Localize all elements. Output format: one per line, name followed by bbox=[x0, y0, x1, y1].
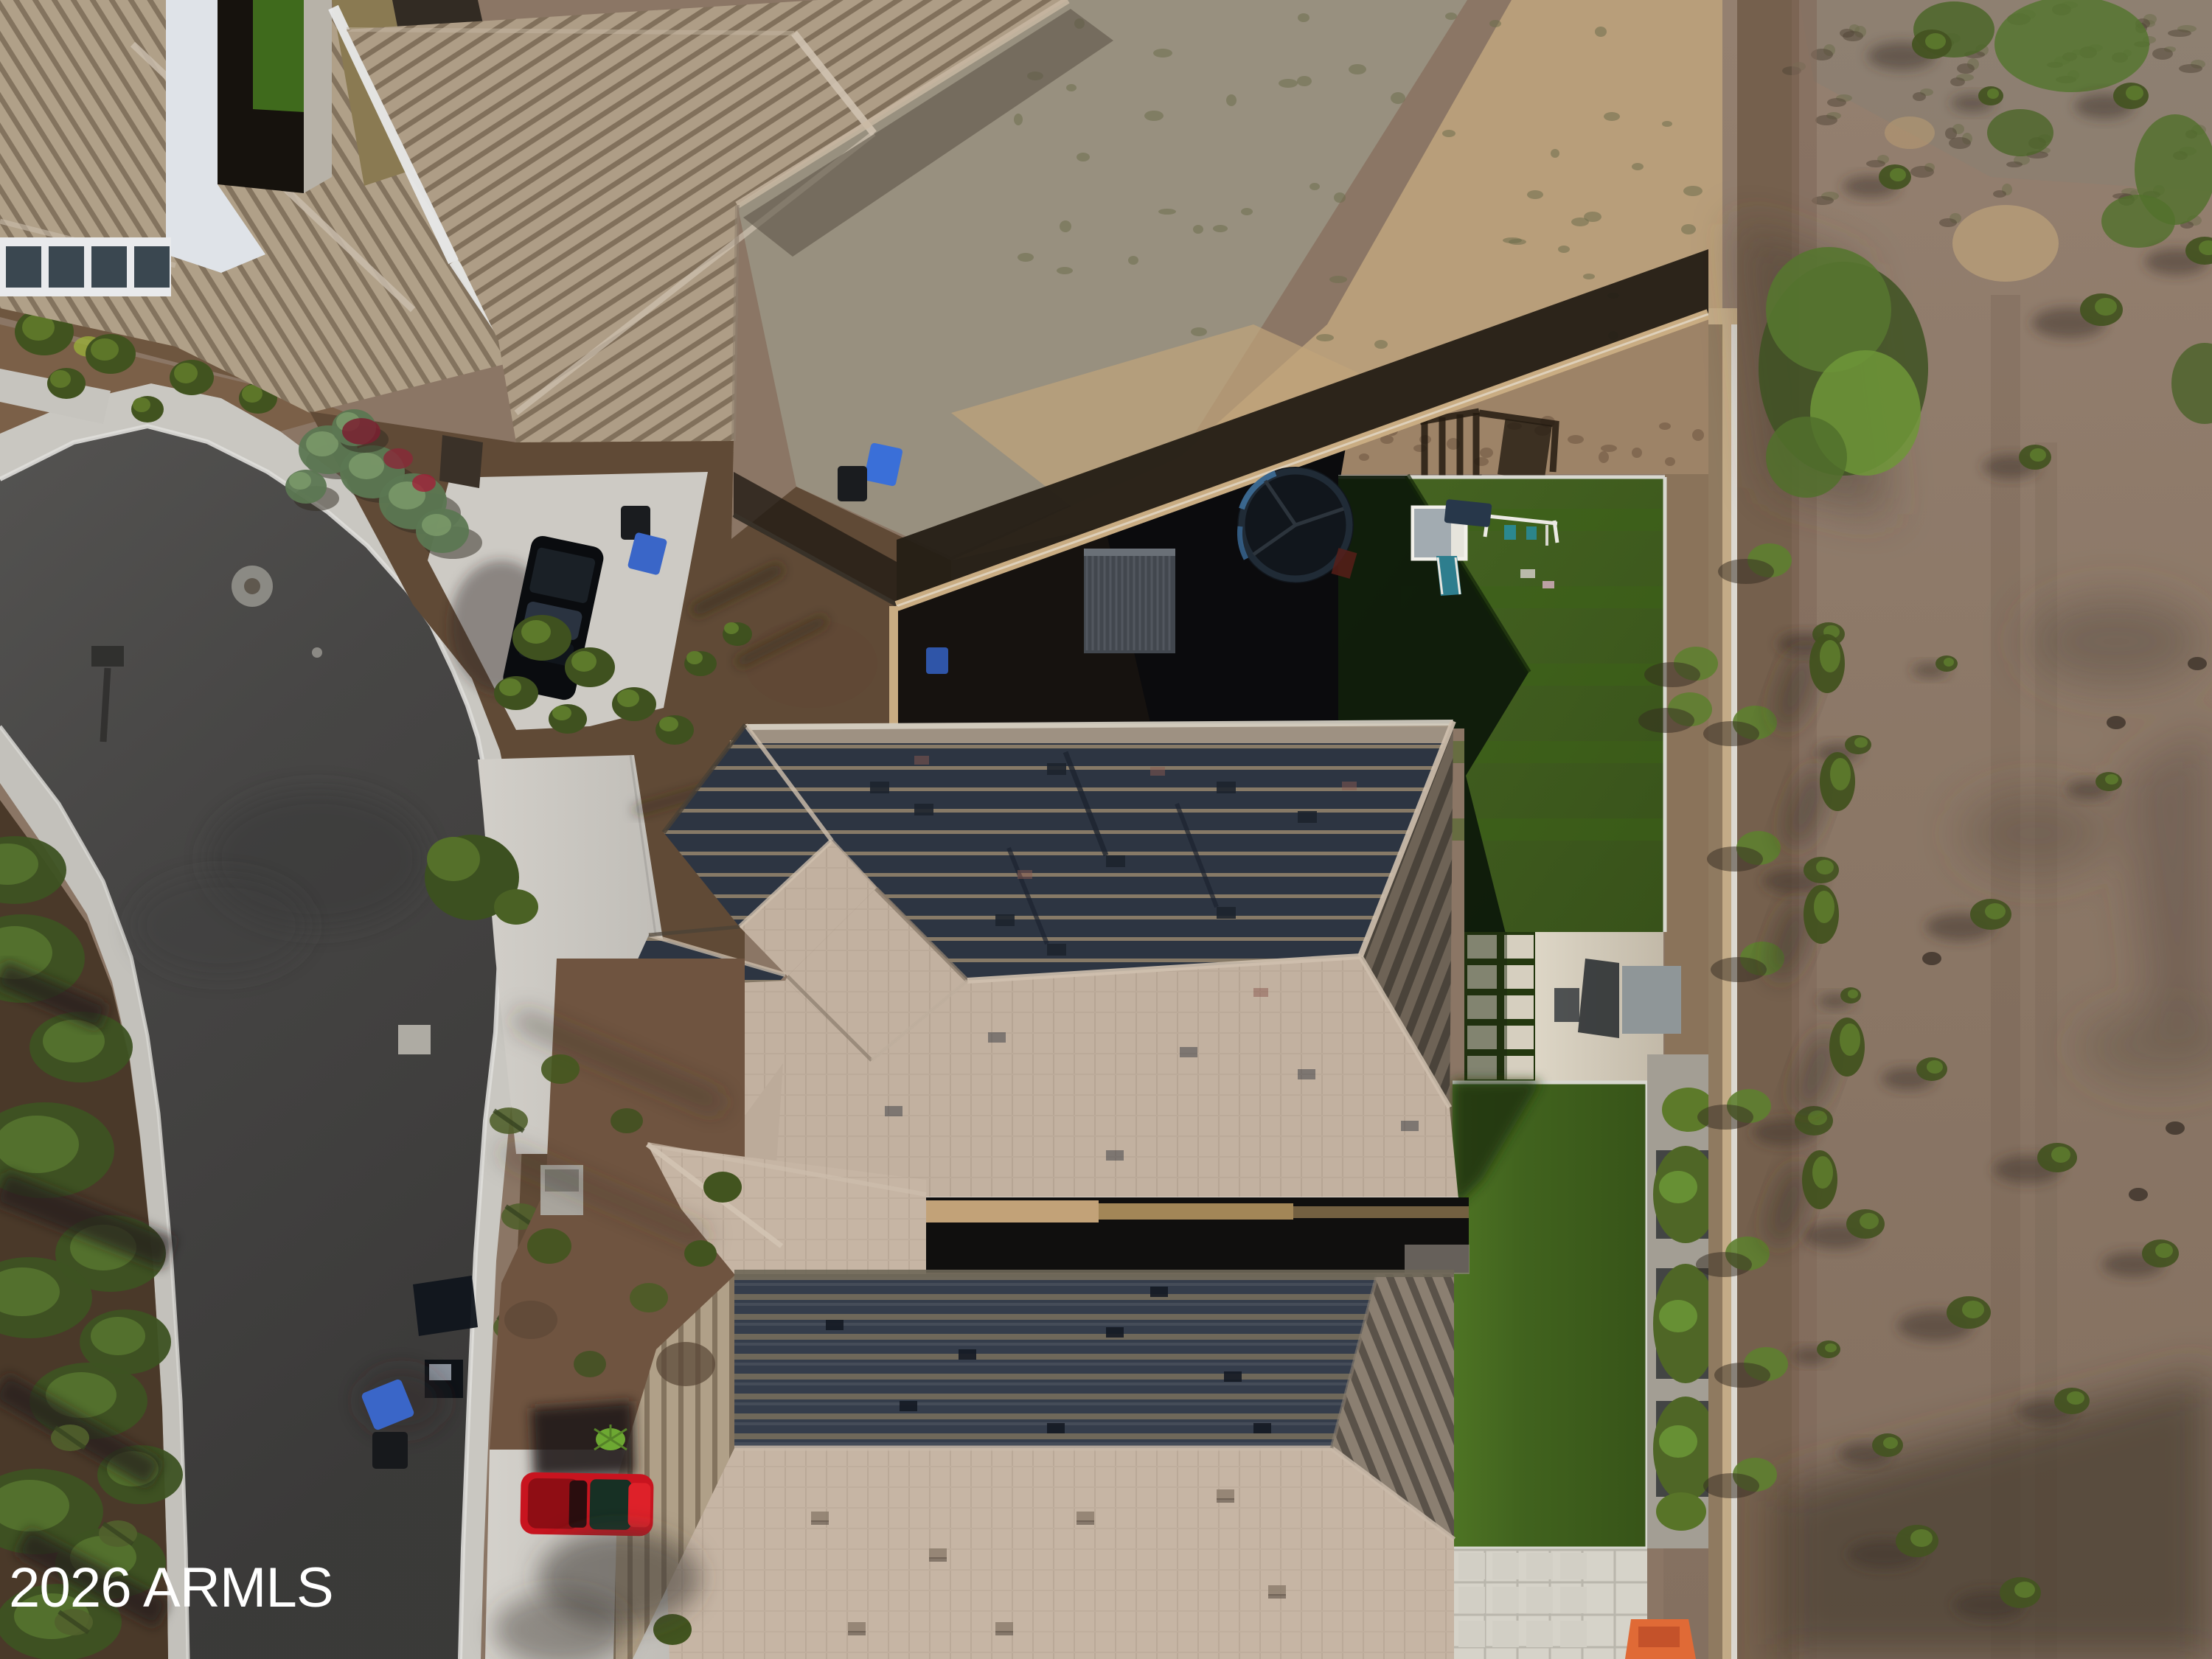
svg-text:2026 ARMLS: 2026 ARMLS bbox=[9, 1557, 333, 1619]
